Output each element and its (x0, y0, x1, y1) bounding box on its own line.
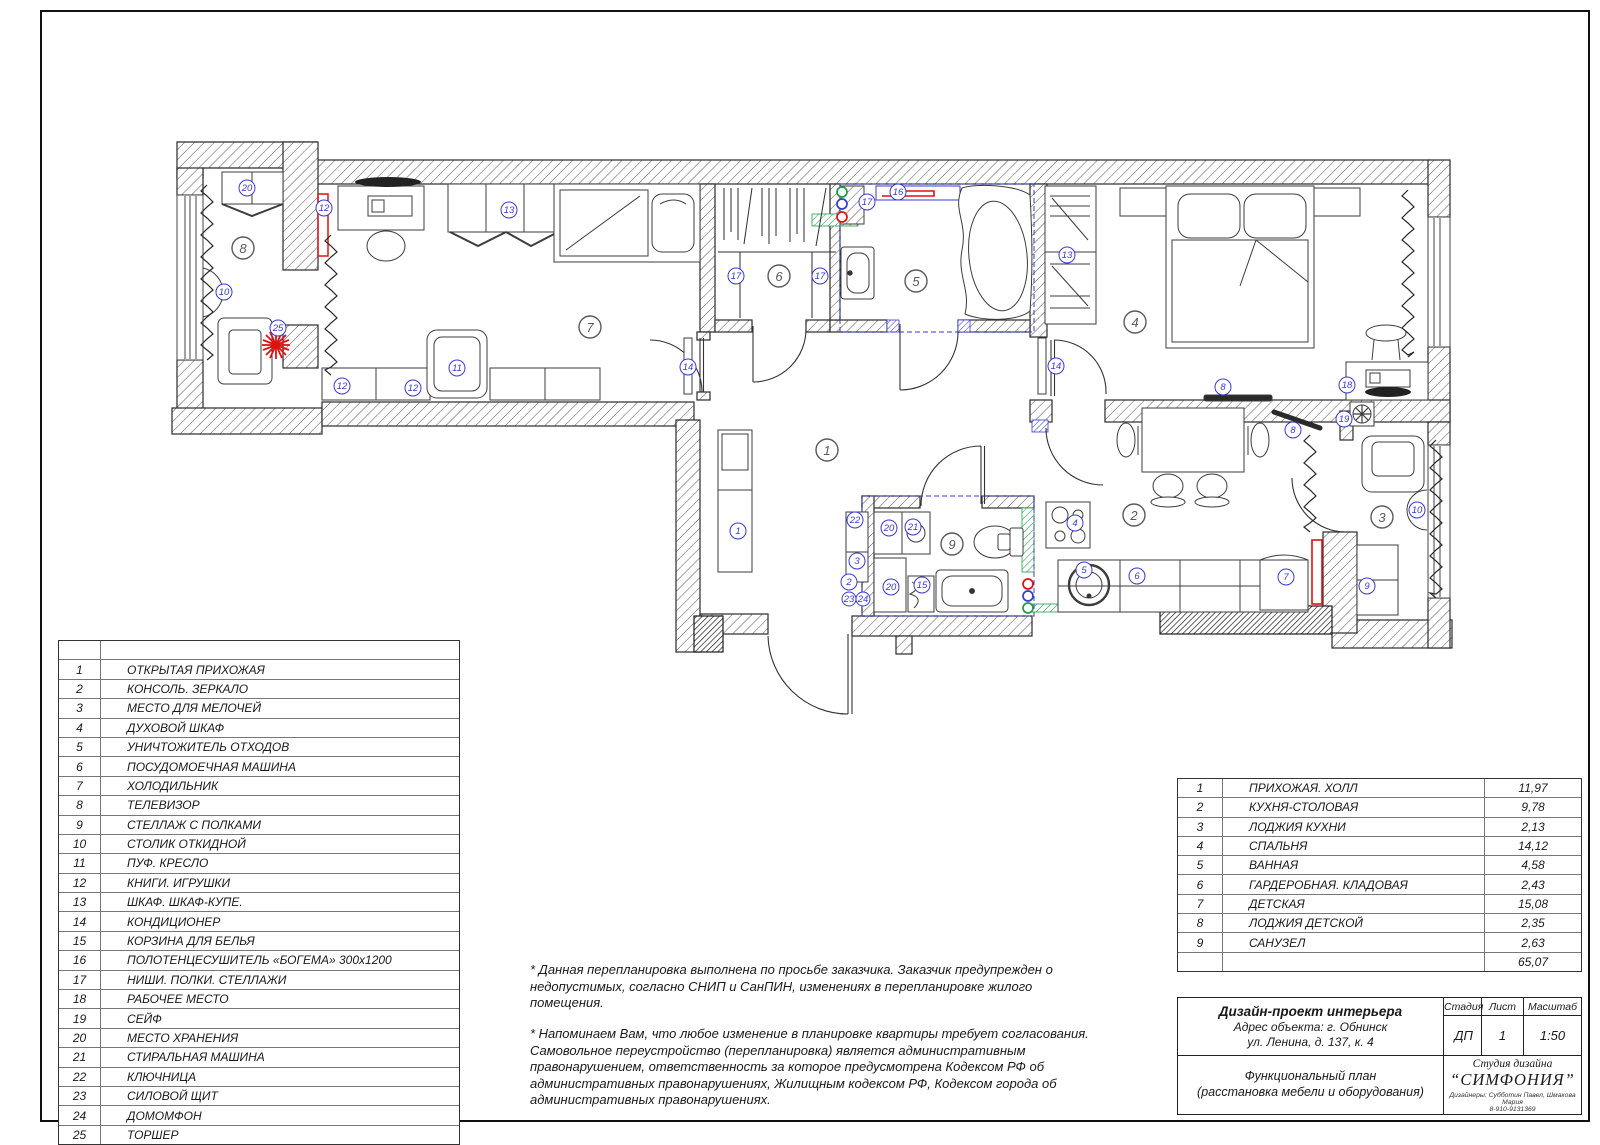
room-row: 8 ЛОДЖИЯ ДЕТСКОЙ 2,35 (1178, 914, 1581, 933)
hanger-rail (718, 188, 836, 318)
nightstand-left (1120, 188, 1166, 216)
room-area: 11,97 (1484, 779, 1581, 797)
svg-text:4: 4 (1072, 518, 1077, 529)
legend-item-label: СЕЙФ (101, 1009, 459, 1027)
legend-item-label: РАБОЧЕЕ МЕСТО (101, 990, 459, 1008)
safe (1350, 402, 1374, 426)
room-number (1178, 953, 1223, 971)
utility-point-red (837, 212, 847, 222)
room-number: 3 (1178, 818, 1223, 836)
legend-item-label: ХОЛОДИЛЬНИК (101, 777, 459, 795)
bed-children (554, 184, 700, 262)
item-marker: 17 (859, 194, 875, 210)
item-marker: 17 (728, 268, 744, 284)
legend-item-label: ДОМОМФОН (101, 1106, 459, 1124)
room-row: 9 САНУЗЕЛ 2,63 (1178, 933, 1581, 952)
legend-item-number: 15 (59, 932, 101, 950)
svg-text:12: 12 (408, 383, 419, 394)
room-row: 7 ДЕТСКАЯ 15,08 (1178, 895, 1581, 914)
room-number: 2 (1178, 798, 1223, 816)
svg-text:3: 3 (1378, 510, 1386, 525)
item-marker: 25 (270, 320, 286, 336)
item-marker: 14 (1048, 358, 1064, 374)
radiator-kitchen (1312, 540, 1322, 604)
legend-row: 20 МЕСТО ХРАНЕНИЯ (59, 1029, 459, 1048)
room-marker: 6 (768, 265, 790, 287)
legend-row: 25 ТОРШЕР (59, 1126, 459, 1144)
svg-text:7: 7 (586, 320, 594, 335)
room-area-table: 1 ПРИХОЖАЯ. ХОЛЛ 11,972 КУХНЯ-СТОЛОВАЯ 9… (1177, 778, 1582, 972)
utility-point-green (837, 187, 847, 197)
item-marker: 5 (1076, 562, 1092, 578)
legend-row: 17 НИШИ. ПОЛКИ. СТЕЛЛАЖИ (59, 971, 459, 990)
legend-item-label (101, 641, 459, 659)
wall-children-bottom (322, 402, 694, 426)
svg-text:15: 15 (917, 580, 928, 591)
svg-text:13: 13 (504, 205, 515, 216)
utility-point-blue (1023, 591, 1033, 601)
legend-item-label: ТЕЛЕВИЗОР (101, 796, 459, 814)
scale-column: Масштаб 1:50 (1524, 998, 1581, 1055)
legend-item-label: ПОЛОТЕНЦЕСУШИТЕЛЬ «БОГЕМА» 300х1200 (101, 951, 459, 969)
legend-item-label: СТЕЛЛАЖ С ПОЛКАМИ (101, 816, 459, 834)
legend-item-label: КОНСОЛЬ. ЗЕРКАЛО (101, 680, 459, 698)
door-bath (900, 324, 958, 390)
room-name (1223, 953, 1484, 971)
legend-item-number: 9 (59, 816, 101, 834)
door-wc (921, 446, 985, 506)
room-marker: 3 (1371, 506, 1393, 528)
room-row: 2 КУХНЯ-СТОЛОВАЯ 9,78 (1178, 798, 1581, 817)
svg-text:5: 5 (1081, 565, 1087, 576)
legend-item-label: ОТКРЫТАЯ ПРИХОЖАЯ (101, 660, 459, 678)
tv-bedroom (1204, 395, 1272, 401)
legend-item-label: ТОРШЕР (101, 1126, 459, 1144)
svg-text:10: 10 (219, 287, 230, 298)
svg-text:13: 13 (1062, 250, 1073, 261)
sheet-column: Лист 1 (1482, 998, 1524, 1055)
toilet (974, 526, 1023, 558)
svg-text:18: 18 (1342, 380, 1353, 391)
room-marker: 2 (1123, 504, 1145, 526)
armchair-loggia (218, 318, 272, 384)
legend-row: 12 КНИГИ. ИГРУШКИ (59, 874, 459, 893)
svg-text:9: 9 (948, 537, 955, 552)
sink-wc (936, 570, 1008, 612)
studio-label: Студия дизайна (1473, 1058, 1553, 1070)
item-marker: 12 (334, 378, 350, 394)
item-marker: 20 (881, 520, 897, 536)
sheet-label: Лист (1482, 998, 1523, 1016)
note-paragraph: * Данная перепланировка выполнена по про… (530, 962, 1108, 1012)
legend-item-label: ДУХОВОЙ ШКАФ (101, 719, 459, 737)
project-address-1: Адрес объекта: г. Обнинск (1234, 1020, 1388, 1034)
doc-name-2: (расстановка мебели и оборудования) (1197, 1085, 1424, 1101)
hall-cabinet (718, 430, 752, 572)
title-block: Дизайн-проект интерьера Адрес объекта: г… (1177, 997, 1582, 1115)
item-marker: 12 (316, 200, 332, 216)
svg-text:9: 9 (1364, 581, 1370, 592)
legend-row: 9 СТЕЛЛАЖ С ПОЛКАМИ (59, 816, 459, 835)
desk-children (338, 177, 424, 261)
studio-name: “СИМФОНИЯ” (1450, 1070, 1575, 1090)
legend-item-number: 3 (59, 699, 101, 717)
legend-item-number: 22 (59, 1068, 101, 1086)
legend-row: 10 СТОЛИК ОТКИДНОЙ (59, 835, 459, 854)
item-marker: 10 (216, 284, 232, 300)
doc-name-1: Функциональный план (1245, 1069, 1377, 1085)
legend-item-number: 13 (59, 893, 101, 911)
legend-row: 6 ПОСУДОМОЕЧНАЯ МАШИНА (59, 757, 459, 776)
svg-text:7: 7 (1283, 572, 1289, 583)
legend-item-number: 4 (59, 719, 101, 737)
svg-text:5: 5 (912, 274, 920, 289)
room-area: 15,08 (1484, 895, 1581, 913)
workplace-desk (1346, 325, 1428, 400)
svg-text:17: 17 (731, 271, 742, 282)
legend-item-number: 25 (59, 1126, 101, 1144)
room-area: 2,63 (1484, 933, 1581, 951)
svg-text:17: 17 (862, 197, 873, 208)
legend-row: 16 ПОЛОТЕНЦЕСУШИТЕЛЬ «БОГЕМА» 300х1200 (59, 951, 459, 970)
stage-value: ДП (1444, 1016, 1483, 1055)
legend-item-label: КНИГИ. ИГРУШКИ (101, 874, 459, 892)
room-name: ВАННАЯ (1223, 856, 1484, 874)
svg-text:1: 1 (735, 526, 740, 537)
stage-column: Стадия ДП (1444, 998, 1482, 1055)
room-number: 4 (1178, 837, 1223, 855)
svg-text:2: 2 (1129, 508, 1138, 523)
legend-item-label: ПОСУДОМОЕЧНАЯ МАШИНА (101, 757, 459, 775)
legend-row: 15 КОРЗИНА ДЛЯ БЕЛЬЯ (59, 932, 459, 951)
door-wardrobe (753, 326, 806, 382)
item-marker: 20 (883, 579, 899, 595)
scale-value: 1:50 (1524, 1016, 1581, 1055)
room-marker: 4 (1124, 311, 1146, 333)
washbasin-bath (841, 247, 874, 299)
utility-point-green (1023, 603, 1033, 613)
room-name: ЛОДЖИЯ КУХНИ (1223, 818, 1484, 836)
room-name: ПРИХОЖАЯ. ХОЛЛ (1223, 779, 1484, 797)
item-marker: 24 (856, 592, 870, 606)
item-marker: 15 (914, 577, 930, 593)
legend-row: 3 МЕСТО ДЛЯ МЕЛОЧЕЙ (59, 699, 459, 718)
svg-text:12: 12 (319, 203, 330, 214)
legend-item-label: СТОЛИК ОТКИДНОЙ (101, 835, 459, 853)
room-marker: 8 (232, 237, 254, 259)
svg-text:19: 19 (1339, 414, 1350, 425)
svg-text:1: 1 (823, 443, 830, 458)
stage-label: Стадия (1444, 998, 1483, 1016)
legend-row: 7 ХОЛОДИЛЬНИК (59, 777, 459, 796)
svg-text:20: 20 (885, 582, 897, 593)
legend-row: 19 СЕЙФ (59, 1009, 459, 1028)
legend-item-number: 14 (59, 912, 101, 930)
nightstand-right (1314, 188, 1360, 216)
svg-text:8: 8 (239, 241, 247, 256)
svg-text:16: 16 (893, 187, 904, 198)
curtain-zigzag (1304, 435, 1316, 532)
item-marker: 17 (812, 268, 828, 284)
room-area: 65,07 (1484, 953, 1581, 971)
svg-text:3: 3 (854, 556, 860, 567)
svg-text:14: 14 (1051, 361, 1062, 372)
room-number: 5 (1178, 856, 1223, 874)
item-marker: 20 (239, 180, 255, 196)
legend-item-number: 5 (59, 738, 101, 756)
room-name: САНУЗЕЛ (1223, 933, 1484, 951)
legend-item-number: 7 (59, 777, 101, 795)
item-marker: 14 (680, 359, 696, 375)
double-bed (1166, 186, 1314, 348)
note-paragraph: * Напоминаем Вам, что любое изменение в … (530, 1026, 1108, 1109)
window-bedroom (1428, 217, 1450, 347)
project-address-2: ул. Ленина, д. 137, к. 4 (1247, 1035, 1373, 1049)
svg-text:12: 12 (337, 381, 348, 392)
ac-bedroom (1038, 338, 1046, 394)
project-title-cell: Дизайн-проект интерьера Адрес объекта: г… (1178, 998, 1444, 1055)
legend-item-number: 2 (59, 680, 101, 698)
legend-item-number: 20 (59, 1029, 101, 1047)
door-kitchen (1046, 428, 1103, 485)
legend-item-label: МЕСТО ХРАНЕНИЯ (101, 1029, 459, 1047)
legend-item-label: ПУФ. КРЕСЛО (101, 854, 459, 872)
legend-row: 1 ОТКРЫТАЯ ПРИХОЖАЯ (59, 660, 459, 679)
legend-item-label: СТИРАЛЬНАЯ МАШИНА (101, 1048, 459, 1066)
designers: Дизайнеры: Субботин Павел, Шмакова Мария (1444, 1092, 1581, 1106)
legend-item-label: НИШИ. ПОЛКИ. СТЕЛЛАЖИ (101, 971, 459, 989)
room-row: 4 СПАЛЬНЯ 14,12 (1178, 837, 1581, 856)
legend-row: 13 ШКАФ. ШКАФ-КУПЕ. (59, 893, 459, 912)
item-marker: 8 (1215, 379, 1231, 395)
legend-item-label: КЛЮЧНИЦА (101, 1068, 459, 1086)
legend-row: 22 КЛЮЧНИЦА (59, 1068, 459, 1087)
legend-row: 21 СТИРАЛЬНАЯ МАШИНА (59, 1048, 459, 1067)
legend-item-number: 17 (59, 971, 101, 989)
utility-point-red (1023, 579, 1033, 589)
document-name-cell: Функциональный план (расстановка мебели … (1178, 1056, 1444, 1114)
legend-row: 18 РАБОЧЕЕ МЕСТО (59, 990, 459, 1009)
item-marker: 21 (905, 519, 921, 535)
room-row: 5 ВАННАЯ 4,58 (1178, 856, 1581, 875)
legend-row: 5 УНИЧТОЖИТЕЛЬ ОТХОДОВ (59, 738, 459, 757)
room-number: 1 (1178, 779, 1223, 797)
room-number: 6 (1178, 875, 1223, 893)
room-marker: 1 (816, 439, 838, 461)
item-marker: 3 (849, 553, 865, 569)
legend-item-number: 21 (59, 1048, 101, 1066)
door-jamb-marks (887, 320, 1048, 432)
svg-text:4: 4 (1131, 315, 1138, 330)
room-area: 2,43 (1484, 875, 1581, 893)
item-marker: 8 (1285, 422, 1301, 438)
room-row: 1 ПРИХОЖАЯ. ХОЛЛ 11,97 (1178, 779, 1581, 798)
legend-item-label: КОНДИЦИОНЕР (101, 912, 459, 930)
legend-row: 4 ДУХОВОЙ ШКАФ (59, 719, 459, 738)
room-name: КУХНЯ-СТОЛОВАЯ (1223, 798, 1484, 816)
legend-item-number: 10 (59, 835, 101, 853)
project-title: Дизайн-проект интерьера (1219, 1004, 1402, 1019)
legend-item-number: 18 (59, 990, 101, 1008)
wall-loggia-partition (283, 142, 318, 270)
item-marker: 4 (1067, 515, 1083, 531)
legend-item-number: 6 (59, 757, 101, 775)
room-row: 3 ЛОДЖИЯ КУХНИ 2,13 (1178, 818, 1581, 837)
legend-row: 23 СИЛОВОЙ ЩИТ (59, 1087, 459, 1106)
item-marker: 23 (842, 592, 856, 606)
item-marker: 10 (1409, 502, 1425, 518)
item-marker: 6 (1129, 568, 1145, 584)
svg-text:23: 23 (843, 594, 855, 605)
legend-item-label: СИЛОВОЙ ЩИТ (101, 1087, 459, 1105)
room-marker: 7 (579, 316, 601, 338)
legend-item-number: 1 (59, 660, 101, 678)
legend-item-label: КОРЗИНА ДЛЯ БЕЛЬЯ (101, 932, 459, 950)
bathtub (959, 185, 1033, 319)
svg-text:20: 20 (883, 523, 895, 534)
room-marker: 9 (941, 533, 963, 555)
room-area: 4,58 (1484, 856, 1581, 874)
item-marker: 13 (1059, 247, 1075, 263)
item-marker: 7 (1278, 569, 1294, 585)
item-marker: 9 (1359, 578, 1375, 594)
svg-text:8: 8 (1290, 425, 1296, 436)
utility-point-blue (837, 199, 847, 209)
room-name: СПАЛЬНЯ (1223, 837, 1484, 855)
dining-table (1117, 408, 1269, 507)
furniture-legend-table: 1 ОТКРЫТАЯ ПРИХОЖАЯ2 КОНСОЛЬ. ЗЕРКАЛО3 М… (58, 640, 460, 1145)
item-marker: 1 (730, 523, 746, 539)
item-marker: 16 (890, 184, 906, 200)
scale-label: Масштаб (1524, 998, 1581, 1016)
item-marker: 2 (841, 574, 857, 590)
studio-phone: 8-910-9131369 (1489, 1106, 1535, 1113)
furniture (203, 172, 1428, 615)
towel-rail (876, 186, 960, 200)
svg-text:22: 22 (849, 515, 861, 526)
legend-row: 14 КОНДИЦИОНЕР (59, 912, 459, 931)
room-name: ЛОДЖИЯ ДЕТСКОЙ (1223, 914, 1484, 932)
legend-row: 11 ПУФ. КРЕСЛО (59, 854, 459, 873)
svg-text:17: 17 (815, 271, 826, 282)
svg-text:24: 24 (857, 594, 869, 605)
item-marker: 22 (847, 512, 863, 528)
window-kitchen-loggia (1428, 445, 1450, 598)
room-row: 65,07 (1178, 953, 1581, 971)
legend-row: 24 ДОМОМФОН (59, 1106, 459, 1125)
item-marker: 13 (501, 202, 517, 218)
room-name: ГАРДЕРОБНАЯ. КЛАДОВАЯ (1223, 875, 1484, 893)
legend-row (59, 641, 459, 660)
item-marker: 19 (1336, 411, 1352, 427)
door-entrance (768, 634, 852, 714)
room-area: 14,12 (1484, 837, 1581, 855)
legend-item-label: УНИЧТОЖИТЕЛЬ ОТХОДОВ (101, 738, 459, 756)
svg-text:6: 6 (775, 269, 783, 284)
svg-text:6: 6 (1134, 571, 1140, 582)
room-row: 6 ГАРДЕРОБНАЯ. КЛАДОВАЯ 2,43 (1178, 875, 1581, 894)
item-marker: 18 (1339, 377, 1355, 393)
armchair-kitchen-loggia (1362, 436, 1424, 492)
legend-item-number: 12 (59, 874, 101, 892)
svg-text:14: 14 (683, 362, 694, 373)
room-name: ДЕТСКАЯ (1223, 895, 1484, 913)
legend-item-number: 19 (59, 1009, 101, 1027)
item-marker: 11 (449, 360, 465, 376)
room-area: 2,13 (1484, 818, 1581, 836)
legend-item-number: 16 (59, 951, 101, 969)
svg-text:21: 21 (907, 522, 919, 533)
notes: * Данная перепланировка выполнена по про… (530, 962, 1108, 1123)
legend-item-number (59, 641, 101, 659)
svg-text:10: 10 (1412, 505, 1423, 516)
room-marker: 5 (905, 270, 927, 292)
room-number: 7 (1178, 895, 1223, 913)
doors (650, 324, 1346, 714)
drawing-sheet: { "legend": { "items": [ {"num":"1","lab… (0, 0, 1600, 1131)
room-area: 9,78 (1484, 798, 1581, 816)
legend-item-number: 23 (59, 1087, 101, 1105)
legend-item-number: 24 (59, 1106, 101, 1124)
legend-row: 2 КОНСОЛЬ. ЗЕРКАЛО (59, 680, 459, 699)
sheet-value: 1 (1482, 1016, 1523, 1055)
item-marker: 12 (405, 380, 421, 396)
legend-item-label: МЕСТО ДЛЯ МЕЛОЧЕЙ (101, 699, 459, 717)
legend-item-number: 8 (59, 796, 101, 814)
svg-text:25: 25 (272, 323, 284, 334)
legend-item-label: ШКАФ. ШКАФ-КУПЕ. (101, 893, 459, 911)
legend-item-number: 11 (59, 854, 101, 872)
studio-cell: Студия дизайна “СИМФОНИЯ” Дизайнеры: Суб… (1444, 1056, 1581, 1114)
room-area: 2,35 (1484, 914, 1581, 932)
svg-text:8: 8 (1220, 382, 1226, 393)
svg-text:11: 11 (452, 363, 462, 374)
door-kitchen-loggia (1292, 478, 1346, 532)
wall-top (317, 160, 1430, 184)
svg-text:2: 2 (845, 577, 852, 588)
legend-row: 8 ТЕЛЕВИЗОР (59, 796, 459, 815)
room-number: 8 (1178, 914, 1223, 932)
room-number: 9 (1178, 933, 1223, 951)
svg-text:20: 20 (241, 183, 253, 194)
